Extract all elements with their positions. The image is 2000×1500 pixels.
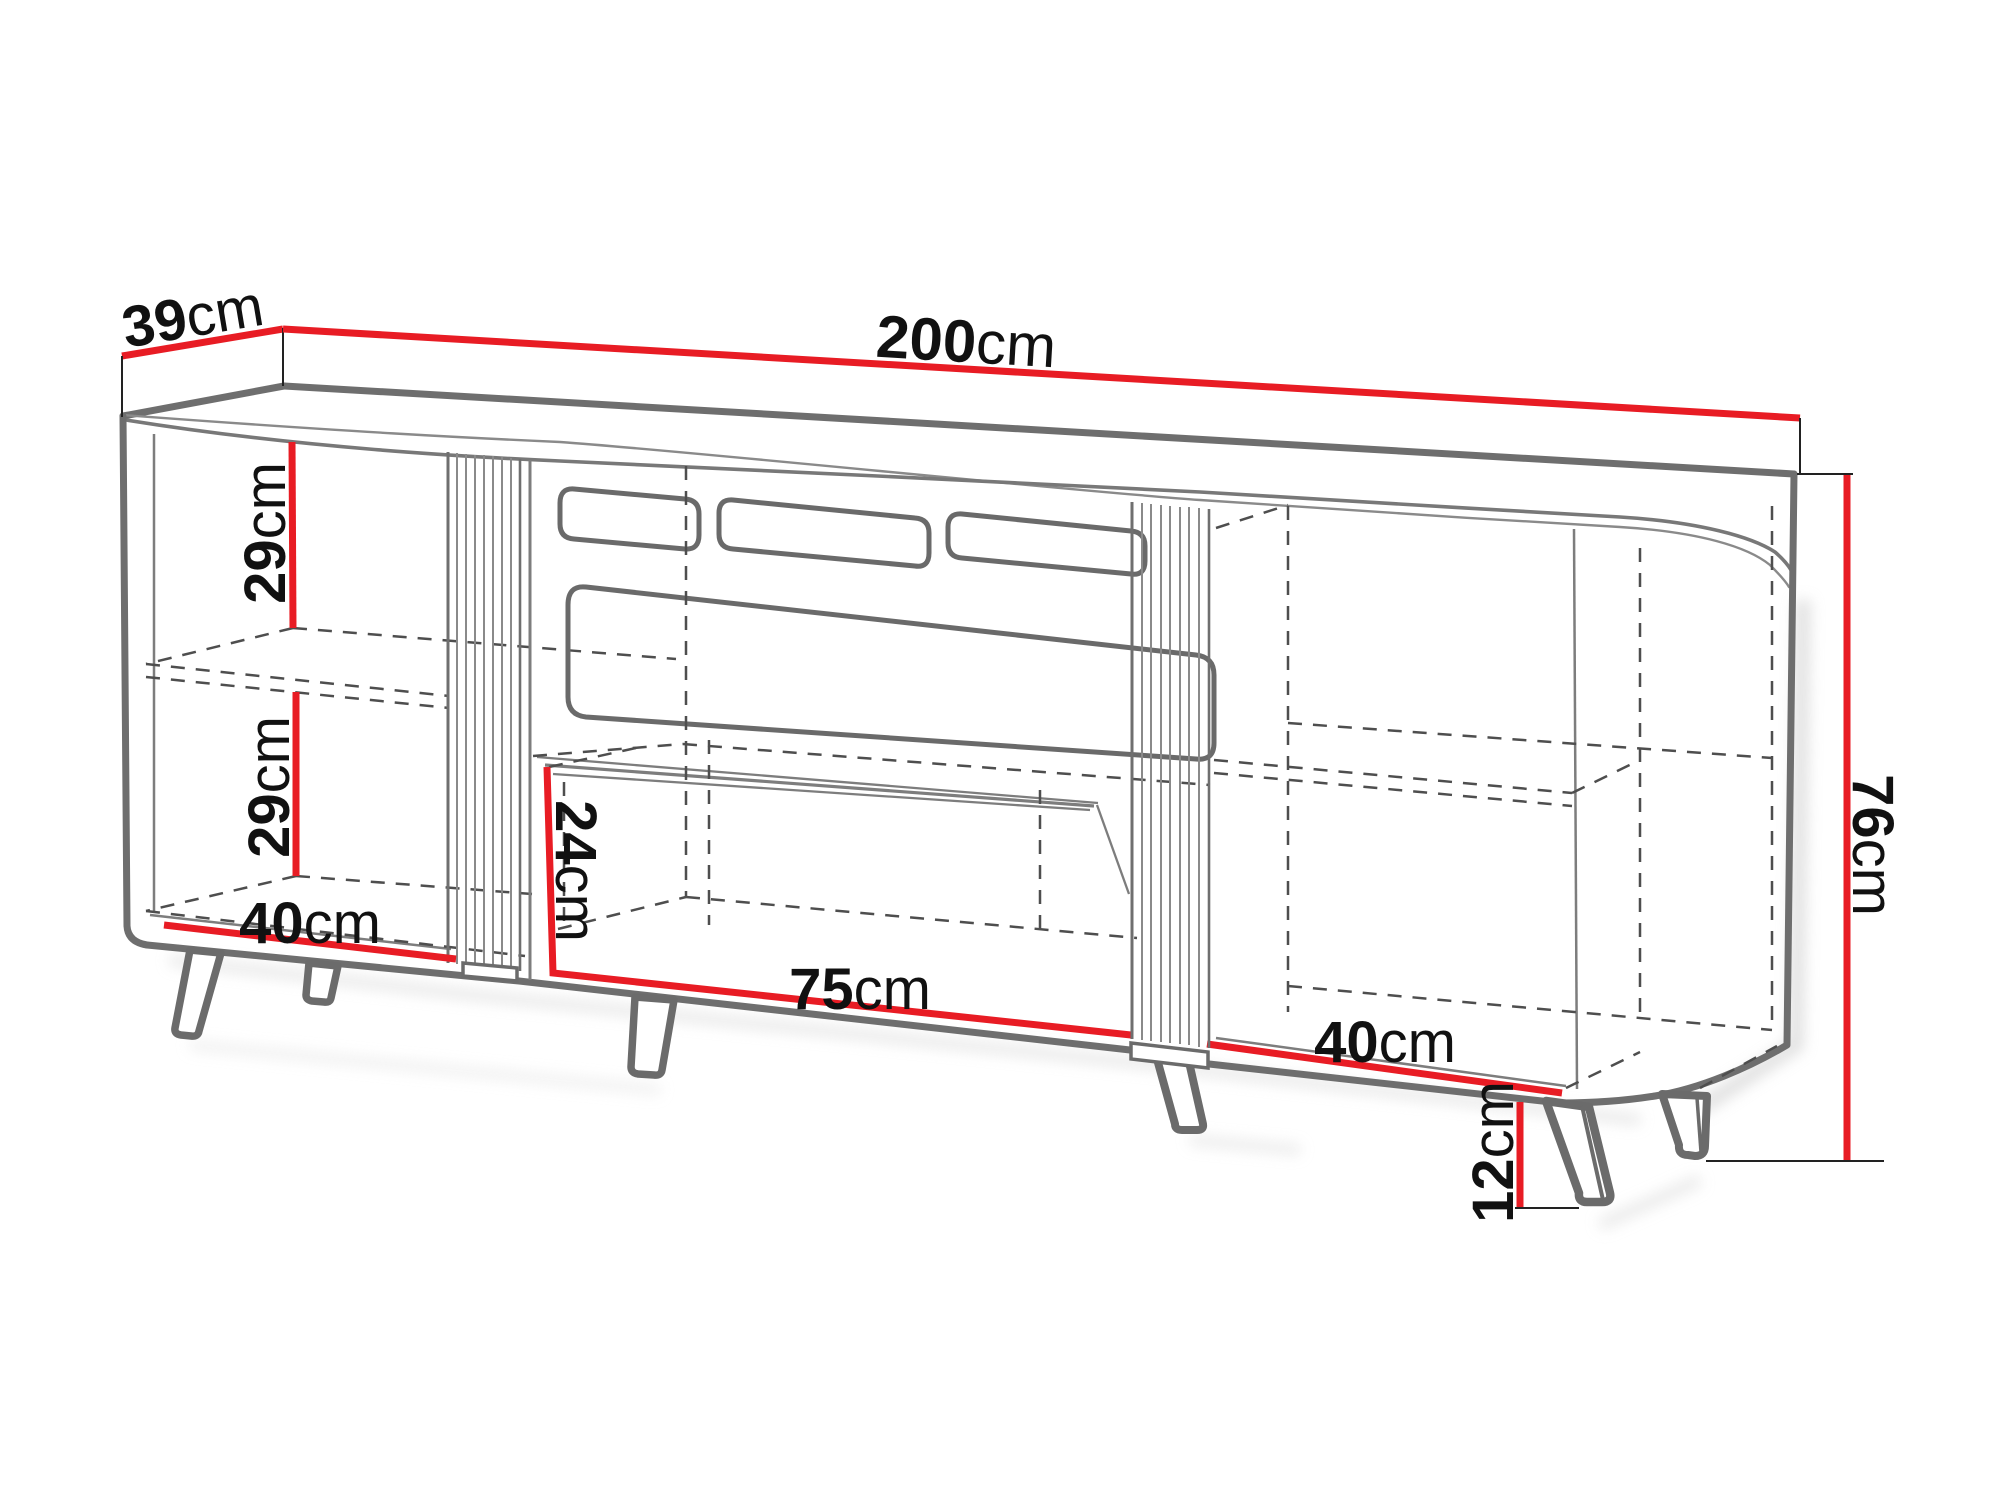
svg-text:76cm: 76cm [1840, 774, 1905, 916]
svg-text:29cm: 29cm [233, 462, 298, 604]
svg-text:24cm: 24cm [543, 800, 608, 942]
svg-text:200cm: 200cm [874, 303, 1058, 381]
svg-text:12cm: 12cm [1461, 1081, 1526, 1223]
svg-text:40cm: 40cm [1314, 1010, 1456, 1075]
svg-text:29cm: 29cm [237, 716, 302, 858]
svg-text:40cm: 40cm [239, 891, 381, 956]
svg-text:75cm: 75cm [789, 957, 931, 1022]
